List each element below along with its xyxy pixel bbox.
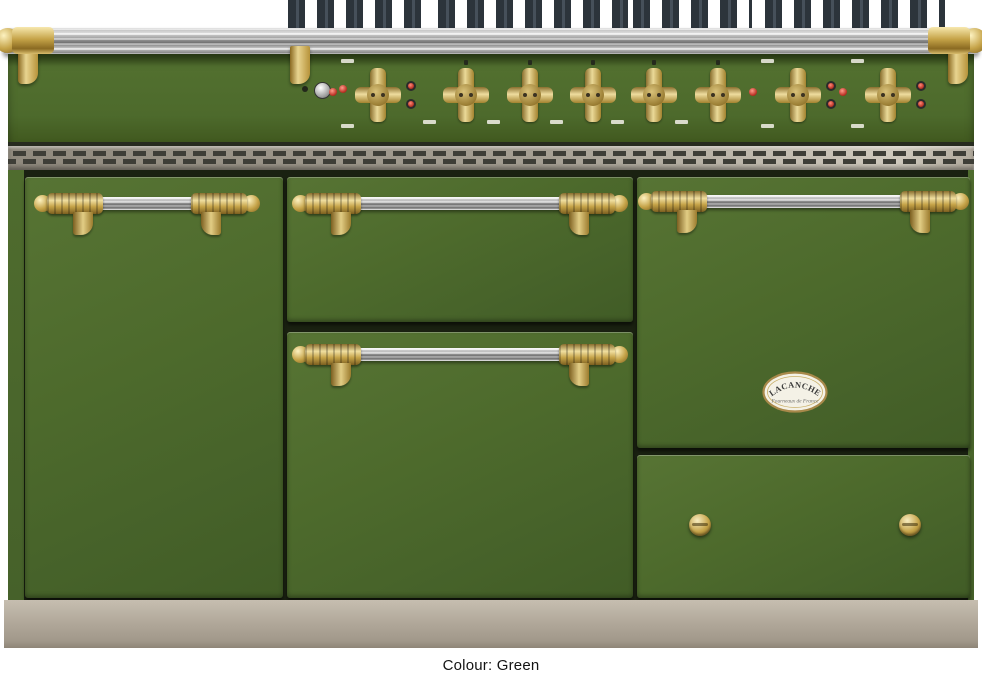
oven-front-body: LACANCHE Fourneaux de France <box>8 170 974 600</box>
rail-bracket <box>290 46 310 84</box>
panel-dot <box>302 86 308 92</box>
spec-label-mark <box>761 59 774 63</box>
drawer-lower-middle <box>287 332 633 598</box>
setting-tick-mark <box>716 60 720 65</box>
handle-bracket <box>559 344 615 365</box>
burner-control-knob <box>443 68 489 122</box>
handle-bracket <box>191 193 247 214</box>
knob-hub <box>367 84 389 106</box>
towel-rail-bar <box>3 28 979 54</box>
setting-tick-mark <box>591 60 595 65</box>
drawer-handle <box>295 189 625 235</box>
handle-bracket <box>47 193 103 214</box>
handle-bracket-leg <box>569 212 589 235</box>
spec-label-mark <box>675 120 688 124</box>
storage-door-left <box>25 177 283 598</box>
rail-brass-sleeve <box>12 27 54 54</box>
rail-end-cap-right <box>922 26 982 56</box>
burner-control-knob <box>631 68 677 122</box>
handle-bracket-leg <box>569 363 589 386</box>
pilot-light <box>329 88 337 96</box>
handle-bracket-leg <box>910 210 930 233</box>
handle-bracket <box>651 191 707 212</box>
oven-thermostat-knob <box>775 68 821 122</box>
control-panel <box>8 54 974 142</box>
spec-label-mark <box>851 59 864 63</box>
colour-caption: Colour: Green <box>0 657 982 674</box>
drawer-knob <box>899 514 921 536</box>
handle-bracket <box>305 344 361 365</box>
handle-bracket <box>305 193 361 214</box>
spec-label-mark <box>423 120 436 124</box>
oven-door-handle <box>641 187 966 233</box>
spec-label-mark <box>341 59 354 63</box>
pilot-light <box>339 85 347 93</box>
drawer-upper-middle <box>287 177 633 322</box>
oven-thermostat-knob <box>865 68 911 122</box>
pilot-light <box>839 88 847 96</box>
oven-door: LACANCHE Fourneaux de France <box>637 177 970 448</box>
pilot-light <box>749 88 757 96</box>
rail-brass-sleeve <box>928 27 970 54</box>
setting-tick-mark <box>464 60 468 65</box>
indicator-light <box>916 99 926 109</box>
knob-hub <box>643 84 665 106</box>
body-frame-left <box>8 170 24 600</box>
badge-tagline-text: Fourneaux de France <box>770 399 819 405</box>
knob-hub <box>787 84 809 106</box>
knob-hub <box>707 84 729 106</box>
indicator-light <box>916 81 926 91</box>
spec-label-mark <box>341 124 354 128</box>
spec-label-mark <box>761 124 774 128</box>
warming-drawer <box>637 455 970 598</box>
burner-control-knob <box>507 68 553 122</box>
indicator-light <box>406 99 416 109</box>
lacanche-badge: LACANCHE Fourneaux de France <box>762 371 828 413</box>
oven-thermostat-knob <box>355 68 401 122</box>
setting-tick-mark <box>652 60 656 65</box>
setting-tick-mark <box>528 60 532 65</box>
handle-bracket-leg <box>331 363 351 386</box>
vent-grille <box>8 146 974 170</box>
drawer-handle <box>295 340 625 386</box>
handle-bracket-leg <box>677 210 697 233</box>
handle-bracket-leg <box>73 212 93 235</box>
knob-hub <box>582 84 604 106</box>
drawer-knob <box>689 514 711 536</box>
knob-hub <box>519 84 541 106</box>
burner-control-knob <box>695 68 741 122</box>
indicator-light <box>406 81 416 91</box>
indicator-light <box>826 99 836 109</box>
spec-label-mark <box>550 120 563 124</box>
knob-hub <box>877 84 899 106</box>
spec-label-mark <box>851 124 864 128</box>
door-handle <box>37 189 257 235</box>
indicator-light <box>826 81 836 91</box>
handle-bracket-leg <box>201 212 221 235</box>
product-photo: LACANCHE Fourneaux de France Colour: Gre… <box>0 0 982 682</box>
burner-control-knob <box>570 68 616 122</box>
rail-end-cap-left <box>0 26 60 56</box>
handle-bracket <box>559 193 615 214</box>
handle-bracket-leg <box>331 212 351 235</box>
knob-hub <box>455 84 477 106</box>
spec-label-mark <box>611 120 624 124</box>
spec-label-mark <box>487 120 500 124</box>
plinth <box>4 600 978 648</box>
handle-bracket <box>900 191 956 212</box>
